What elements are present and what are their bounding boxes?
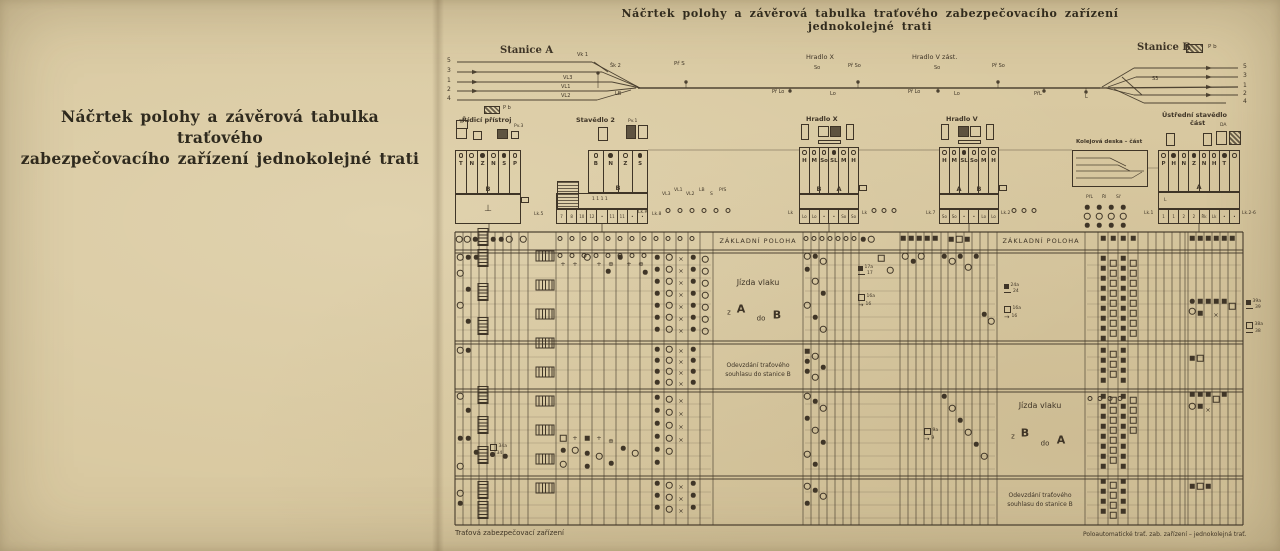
lever-dot	[513, 153, 518, 158]
table-mark	[536, 454, 555, 465]
lever-dot	[1192, 153, 1197, 158]
panel-aux-label: Řl	[1102, 196, 1106, 201]
panel-top-box	[986, 124, 994, 140]
table-mark: ×	[678, 496, 683, 503]
table-mark	[1230, 236, 1235, 241]
table-mark	[1110, 330, 1117, 337]
schematic-label: Stanice B	[1137, 43, 1191, 53]
table-mark	[813, 462, 818, 467]
table-mark	[536, 367, 555, 378]
table-mark	[655, 369, 660, 374]
table-mark	[702, 328, 709, 335]
table-mark	[478, 416, 489, 434]
table-mark	[499, 237, 504, 242]
table-mark	[1206, 484, 1211, 489]
panel-top-box	[598, 127, 608, 141]
lever-slot: H	[800, 148, 809, 193]
legend-row: 17a	[858, 266, 873, 271]
legend-text: 34a	[499, 445, 507, 450]
legend-row: 24	[1004, 290, 1019, 295]
legend-glyph	[1246, 332, 1253, 333]
lever-slot	[1229, 151, 1239, 191]
table-mark	[887, 267, 894, 274]
legend-glyph	[858, 266, 863, 271]
panel-title: Stavědlo 2	[576, 117, 615, 124]
table-mark	[655, 493, 660, 498]
table-mark	[1108, 213, 1115, 220]
lever-dot	[841, 150, 846, 155]
table-mark	[917, 236, 922, 241]
lever-dot	[851, 150, 856, 155]
legend-glyph	[1004, 306, 1011, 313]
table-mark	[1190, 236, 1195, 241]
legend-text: 38	[1255, 330, 1261, 335]
table-section-label: B	[773, 310, 781, 321]
legend-row: 39	[1246, 306, 1261, 311]
table-mark	[536, 280, 555, 291]
legend-text: 17	[867, 272, 873, 277]
table-mark	[702, 316, 709, 323]
table-mark	[1130, 427, 1137, 434]
panel-top-box	[958, 140, 981, 144]
table-mark	[666, 409, 673, 416]
table-mark	[655, 347, 660, 352]
table-mark	[457, 254, 464, 261]
table-mark	[965, 264, 972, 271]
table-mark	[491, 237, 496, 242]
table-mark	[1130, 397, 1137, 404]
panel-top-box	[1229, 131, 1241, 145]
legend-text: 24a	[1011, 284, 1019, 289]
lever-letter: B	[594, 161, 598, 167]
panel-base-box	[799, 194, 859, 209]
table-mark	[1121, 444, 1126, 449]
symbol-legend: 39a39	[1246, 300, 1261, 311]
table-mark	[902, 253, 909, 260]
panel-track-letter: B	[977, 185, 982, 193]
lever-slot: H	[1209, 151, 1219, 191]
legend-text: 16	[865, 303, 871, 308]
table-mark	[1229, 303, 1236, 310]
symbol-legend: 16a→16	[858, 294, 875, 309]
block-strip-cell: •	[828, 210, 838, 223]
table-mark	[909, 236, 914, 241]
table-mark	[804, 253, 811, 260]
legend-glyph: →	[924, 436, 929, 443]
table-mark	[813, 488, 818, 493]
table-mark	[585, 436, 590, 441]
table-mark	[1121, 404, 1126, 409]
schematic-label: S3	[1152, 77, 1158, 82]
table-mark	[466, 255, 471, 260]
table-mark	[1101, 286, 1106, 291]
table-mark	[1101, 479, 1106, 484]
table-mark	[1130, 320, 1137, 327]
table-mark	[572, 447, 579, 454]
legend-row: 34a	[490, 444, 507, 451]
table-mark	[812, 278, 819, 285]
table-mark	[981, 453, 988, 460]
lever-dot	[832, 150, 837, 155]
table-mark	[691, 291, 696, 296]
table-mark	[655, 303, 660, 308]
panel-aux-label: Lk	[788, 212, 793, 217]
table-mark	[1121, 286, 1126, 291]
table-mark	[1198, 311, 1203, 316]
table-mark	[655, 434, 660, 439]
track-number-left: 3	[447, 68, 451, 74]
table-mark	[1110, 351, 1117, 358]
legend-glyph	[858, 274, 865, 275]
table-mark	[1110, 361, 1117, 368]
track-number-right: 5	[1243, 64, 1247, 70]
lever-letter: H	[851, 158, 856, 164]
lever-letter: N	[491, 161, 496, 167]
table-mark	[1101, 424, 1106, 429]
table-mark: ×	[678, 411, 683, 418]
panel-aux-label: Lk.5	[534, 213, 543, 218]
table-mark	[655, 291, 660, 296]
table-mark	[1197, 355, 1204, 362]
table-mark	[691, 315, 696, 320]
lever-dot	[972, 150, 977, 155]
table-mark	[666, 357, 673, 364]
table-mark	[1121, 424, 1126, 429]
table-section-label: z	[1011, 434, 1015, 441]
table-mark	[655, 327, 660, 332]
legend-row: 16a	[858, 294, 875, 301]
table-mark	[1110, 310, 1117, 317]
table-mark	[1214, 236, 1219, 241]
table-mark	[655, 279, 660, 284]
panel-top-box	[958, 126, 969, 137]
panel-aux-label: Pv.3	[514, 125, 523, 130]
block-strip-cell: •	[968, 210, 978, 223]
table-mark	[918, 253, 925, 260]
lever-dot	[594, 153, 599, 158]
panel-aux-label: Lk.1	[1144, 212, 1153, 217]
block-strip-cell: •	[627, 210, 637, 223]
lever-dot	[812, 150, 817, 155]
table-mark	[1110, 320, 1117, 327]
table-mark	[1121, 378, 1126, 383]
table-mark	[1110, 270, 1117, 277]
panel-top-box	[941, 124, 949, 140]
legend-glyph	[490, 452, 495, 457]
block-strip-cell: So	[838, 210, 848, 223]
schematic-label: L	[1085, 95, 1088, 100]
legend-glyph	[924, 428, 931, 435]
lever-slot: N	[1178, 151, 1188, 191]
hatched-building-box	[484, 106, 500, 114]
panel-aux-label: PřS	[719, 189, 726, 194]
panel-aux-label: PřL	[1086, 196, 1093, 201]
table-mark	[1213, 396, 1220, 403]
lever-slot: H	[940, 148, 949, 193]
legend-text: 24	[1013, 290, 1019, 295]
panel-title: Hradlo V	[946, 116, 978, 123]
panel-base-box	[939, 194, 999, 209]
legend-glyph	[490, 444, 497, 451]
legend-row: 24a	[1004, 284, 1019, 289]
block-strip-cell: •	[819, 210, 829, 223]
lever-dot	[981, 150, 986, 155]
table-mark	[478, 501, 489, 519]
table-mark	[618, 255, 623, 260]
table-mark	[1206, 392, 1211, 397]
lever-dot	[942, 150, 947, 155]
track-panel-box	[1072, 150, 1148, 187]
panel-side-tab	[859, 185, 867, 191]
table-mark	[1101, 509, 1106, 514]
table-mark	[478, 446, 489, 464]
table-mark	[813, 254, 818, 259]
table-mark	[466, 408, 471, 413]
lever-letter: SL	[960, 158, 967, 164]
panel-aux-label: Lk	[862, 212, 867, 217]
table-mark: ×	[678, 316, 683, 323]
table-mark	[1110, 417, 1117, 424]
table-mark	[655, 421, 660, 426]
panel-track-letter: A	[956, 185, 961, 193]
track-number-left: 5	[447, 58, 451, 64]
table-mark	[457, 347, 464, 354]
table-section-label: z	[727, 310, 731, 317]
table-mark	[813, 399, 818, 404]
panel-aux-label: L	[1164, 199, 1167, 204]
table-mark: +	[560, 261, 565, 268]
table-mark	[820, 493, 827, 500]
table-mark	[1109, 205, 1114, 210]
table-mark	[702, 268, 709, 275]
table-mark: ⊕	[608, 438, 613, 445]
table-mark	[596, 453, 603, 460]
table-mark	[1222, 392, 1227, 397]
table-mark	[949, 237, 954, 242]
table-mark	[1110, 371, 1117, 378]
table-mark	[1121, 256, 1126, 261]
table-mark	[1101, 454, 1106, 459]
table-mark	[1085, 205, 1090, 210]
lever-dot	[1212, 153, 1217, 158]
table-mark	[813, 315, 818, 320]
legend-row: →16	[858, 302, 875, 309]
table-mark	[560, 435, 567, 442]
table-mark	[1130, 300, 1137, 307]
table-mark: ×	[1213, 312, 1218, 319]
table-mark	[982, 312, 987, 317]
legend-glyph	[1004, 292, 1011, 293]
table-mark	[1198, 299, 1203, 304]
lever-letter: S	[638, 161, 642, 167]
table-mark	[536, 309, 555, 320]
panel-aux-label: Lk.2-6	[1242, 212, 1256, 217]
table-mark	[925, 236, 930, 241]
panel-aux-label: VL2	[686, 193, 694, 198]
panel-base-box	[1158, 192, 1240, 209]
table-mark	[536, 338, 555, 349]
table-mark	[1190, 299, 1195, 304]
schematic-label: Př Lo	[772, 90, 784, 95]
track-panel-title: Kolejová deska – část	[1076, 140, 1142, 146]
table-mark: ×	[678, 268, 683, 275]
table-mark	[958, 418, 963, 423]
block-strip-cell: Lo	[978, 210, 988, 223]
legend-row: 38	[1246, 330, 1263, 335]
table-mark	[1101, 358, 1106, 363]
table-mark	[643, 270, 648, 275]
schematic-label: So	[814, 66, 820, 71]
table-mark	[1121, 499, 1126, 504]
panel-top-box	[638, 125, 648, 139]
table-mark	[584, 254, 591, 261]
schematic-label: Vk 1	[577, 53, 588, 58]
lever-letter: P	[1162, 161, 1166, 167]
panel-aux-label: Lk.7	[926, 212, 935, 217]
table-mark	[458, 436, 463, 441]
table-mark	[1190, 392, 1195, 397]
lever-letter: S	[502, 161, 506, 167]
panel-top-box	[801, 124, 809, 140]
table-mark	[655, 315, 660, 320]
schematic-label: Hradlo X	[806, 54, 834, 61]
table-mark	[1121, 358, 1126, 363]
lever-dot	[491, 153, 496, 158]
table-mark	[1130, 260, 1137, 267]
table-mark	[474, 450, 479, 455]
lever-letter: M	[981, 158, 986, 164]
lever-slots: HMSoSLMH	[800, 148, 858, 193]
table-mark	[1130, 407, 1137, 414]
lever-letter: H	[991, 158, 996, 164]
table-mark	[621, 446, 626, 451]
table-section-label: souhlasu do stanice B	[1007, 502, 1073, 508]
table-mark	[1130, 330, 1137, 337]
table-mark	[1121, 454, 1126, 459]
table-mark	[1189, 308, 1196, 315]
table-mark	[666, 506, 673, 513]
table-mark	[933, 236, 938, 241]
panel-top-box	[497, 129, 508, 139]
table-mark	[456, 236, 463, 243]
table-mark	[1101, 489, 1106, 494]
table-mark	[585, 464, 590, 469]
table-mark	[901, 236, 906, 241]
table-mark	[466, 348, 471, 353]
table-mark	[958, 254, 963, 259]
table-mark	[655, 267, 660, 272]
table-mark: +	[572, 435, 577, 442]
block-strip-cell: 7	[557, 210, 566, 223]
table-mark	[1121, 236, 1126, 241]
table-mark	[655, 460, 660, 465]
table-mark	[666, 422, 673, 429]
panel-aux-label: Tč	[459, 121, 463, 126]
lever-dot	[480, 153, 485, 158]
lever-dot	[459, 153, 464, 158]
table-mark: ×	[678, 280, 683, 287]
panel-top-box	[970, 126, 981, 137]
table-mark	[666, 278, 673, 285]
block-strip-cell: 1	[1168, 210, 1178, 223]
table-section-label: Jízda vlaku	[737, 279, 780, 287]
schematic-label: PřL	[1034, 92, 1042, 97]
table-mark	[466, 319, 471, 324]
table-mark	[702, 256, 709, 263]
table-mark	[1101, 414, 1106, 419]
table-mark	[805, 267, 810, 272]
lever-dot	[962, 150, 967, 155]
table-mark	[655, 380, 660, 385]
panel-track-letter: A	[1196, 183, 1201, 191]
table-mark	[1110, 300, 1117, 307]
table-mark	[466, 287, 471, 292]
table-mark	[942, 254, 947, 259]
legend-text: 38a	[1255, 323, 1263, 328]
table-mark	[1121, 434, 1126, 439]
table-mark	[609, 461, 614, 466]
table-mark	[666, 290, 673, 297]
panel-lever-box: HMSoSLMH	[799, 147, 859, 194]
schematic-label: Př S	[674, 62, 685, 68]
table-mark	[861, 237, 866, 242]
table-section-label: B	[1021, 428, 1029, 439]
table-mark	[1222, 299, 1227, 304]
table-mark	[691, 267, 696, 272]
panel-title: Řídicí přístroj	[462, 117, 511, 124]
table-mark	[1121, 296, 1126, 301]
table-mark	[1110, 482, 1117, 489]
legend-text: 17a	[865, 266, 873, 271]
table-mark	[1121, 509, 1126, 514]
lever-dot	[608, 153, 613, 158]
lever-letter: Z	[623, 161, 627, 167]
table-mark	[536, 483, 555, 494]
lever-dot	[1222, 153, 1227, 158]
schematic-label: Př So	[848, 64, 861, 69]
legend-glyph: →	[1004, 314, 1009, 321]
table-mark	[655, 408, 660, 413]
lever-slot: P	[1159, 151, 1168, 191]
table-mark	[1198, 404, 1203, 409]
table-mark	[1110, 427, 1117, 434]
table-mark	[965, 429, 972, 436]
table-mark	[1190, 356, 1195, 361]
block-strip-cell: So	[940, 210, 949, 223]
legend-glyph	[1246, 322, 1253, 329]
schematic-label: P b	[503, 106, 511, 111]
table-mark	[536, 251, 555, 262]
table-mark	[1198, 236, 1203, 241]
lever-letter: N	[608, 161, 613, 167]
block-strip-cell: 12	[586, 210, 596, 223]
panel-aux-label: Lk.2	[1001, 212, 1010, 217]
panel-top-box	[473, 131, 482, 140]
table-mark	[1121, 316, 1126, 321]
table-mark	[1109, 223, 1114, 228]
table-mark	[878, 255, 885, 262]
legend-row: →16	[1004, 314, 1021, 321]
panel-aux-label: Pv.1	[628, 120, 637, 125]
table-mark	[820, 258, 827, 265]
table-mark	[666, 346, 673, 353]
table-mark	[1101, 404, 1106, 409]
table-mark	[1206, 236, 1211, 241]
table-section-label: do	[1041, 441, 1050, 448]
table-mark	[1097, 223, 1102, 228]
table-mark	[1121, 326, 1126, 331]
table-mark	[702, 304, 709, 311]
